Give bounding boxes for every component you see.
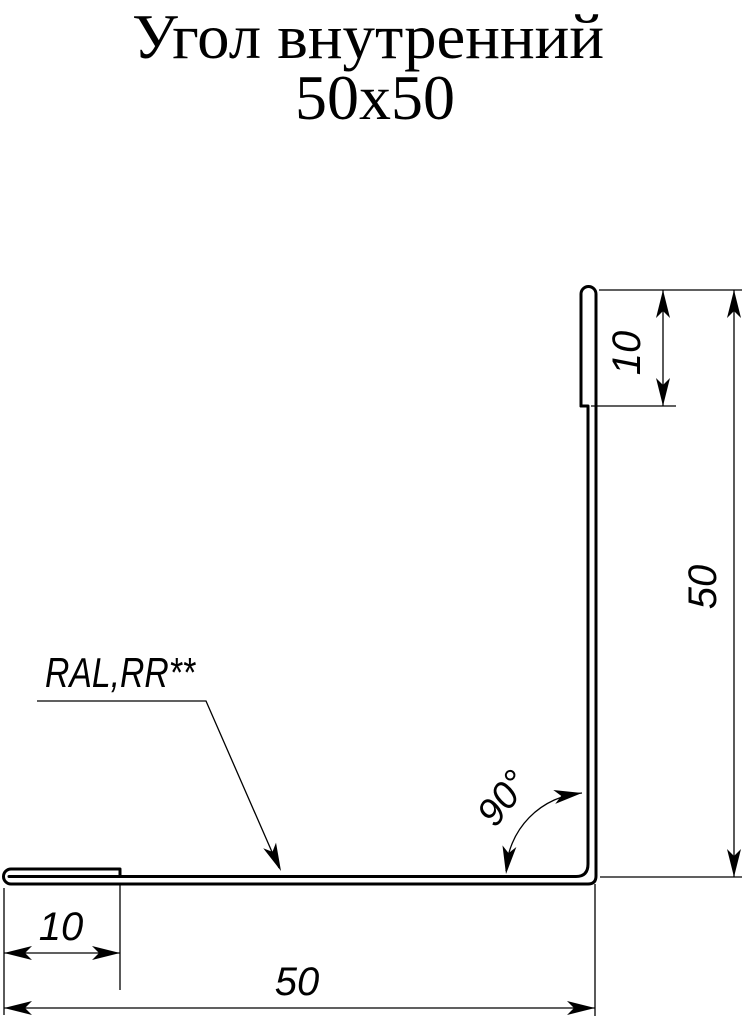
dimension-label-bottom-leg: 50 [275, 960, 320, 1004]
material-leader-line [37, 701, 279, 868]
dimension-label-top-hem: 10 [605, 331, 649, 376]
arrowhead [263, 843, 287, 874]
arrowhead [553, 786, 583, 804]
title-line-2: 50x50 [295, 62, 455, 133]
technical-drawing: Угол внутренний 50x50 [0, 0, 746, 1022]
material-label: RAL,RR** [45, 649, 196, 696]
drawing-canvas: Угол внутренний 50x50 [0, 0, 746, 1022]
dimension-label-right-leg: 50 [681, 565, 725, 610]
dimension-label-bottom-hem: 10 [39, 905, 84, 949]
angle-label: 90° [469, 763, 537, 834]
arrowhead [499, 845, 516, 874]
